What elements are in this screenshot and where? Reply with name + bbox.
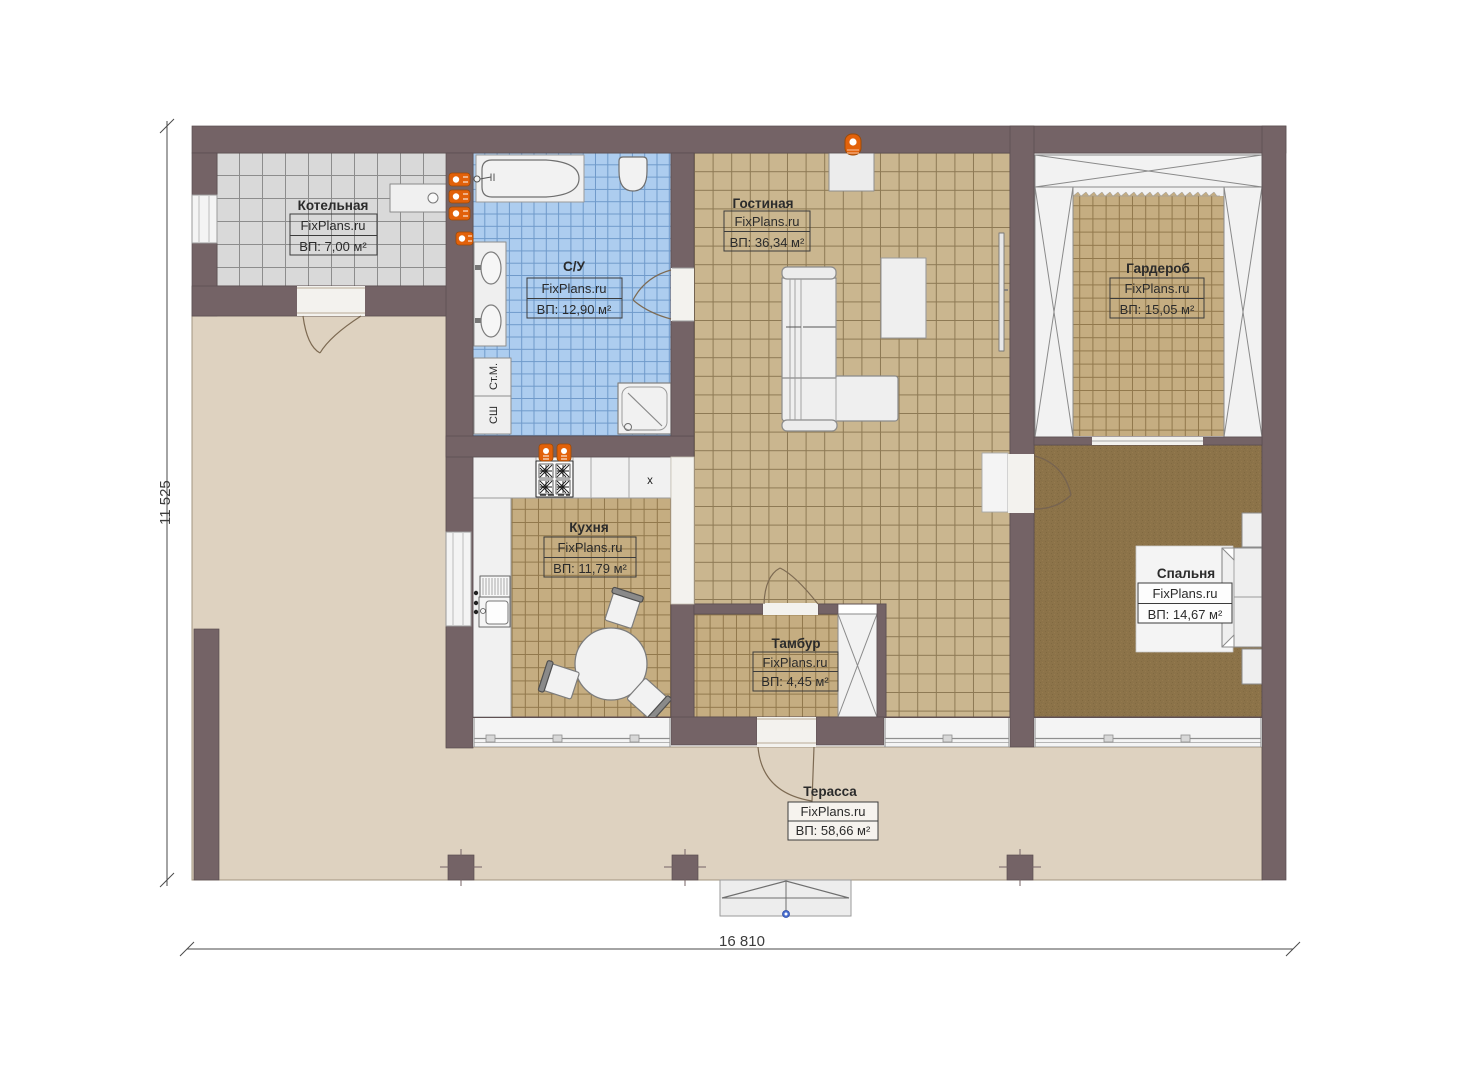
svg-text:FixPlans.ru: FixPlans.ru (800, 804, 865, 819)
svg-text:FixPlans.ru: FixPlans.ru (300, 218, 365, 233)
svg-text:ВП: 58,66 м²: ВП: 58,66 м² (796, 823, 871, 838)
svg-text:x: x (647, 475, 653, 487)
svg-text:С/У: С/У (563, 259, 586, 274)
svg-text:Гардероб: Гардероб (1126, 261, 1190, 276)
svg-text:ВП: 4,45 м²: ВП: 4,45 м² (761, 674, 829, 689)
svg-text:FixPlans.ru: FixPlans.ru (762, 655, 827, 670)
svg-text:ВП: 15,05 м²: ВП: 15,05 м² (1120, 302, 1195, 317)
svg-text:Терасса: Терасса (803, 784, 857, 799)
svg-text:Котельная: Котельная (298, 198, 369, 213)
svg-text:СШ: СШ (488, 406, 500, 424)
svg-text:Гостиная: Гостиная (732, 196, 793, 211)
svg-text:Ст.М.: Ст.М. (488, 363, 500, 390)
svg-text:ВП: 14,67 м²: ВП: 14,67 м² (1148, 607, 1223, 622)
svg-text:Тамбур: Тамбур (772, 636, 821, 651)
svg-text:FixPlans.ru: FixPlans.ru (557, 540, 622, 555)
svg-text:16 810: 16 810 (719, 933, 765, 950)
svg-text:ВП: 12,90 м²: ВП: 12,90 м² (537, 302, 612, 317)
svg-text:ВП: 36,34 м²: ВП: 36,34 м² (730, 235, 805, 250)
svg-text:FixPlans.ru: FixPlans.ru (1124, 281, 1189, 296)
svg-text:FixPlans.ru: FixPlans.ru (734, 214, 799, 229)
svg-text:ВП: 11,79 м²: ВП: 11,79 м² (553, 561, 627, 576)
svg-text:11 525: 11 525 (157, 480, 174, 525)
svg-text:FixPlans.ru: FixPlans.ru (541, 281, 606, 296)
svg-text:Спальня: Спальня (1157, 566, 1215, 581)
svg-text:Кухня: Кухня (569, 520, 608, 535)
svg-text:ВП: 7,00 м²: ВП: 7,00 м² (299, 239, 367, 254)
svg-text:FixPlans.ru: FixPlans.ru (1152, 586, 1217, 601)
